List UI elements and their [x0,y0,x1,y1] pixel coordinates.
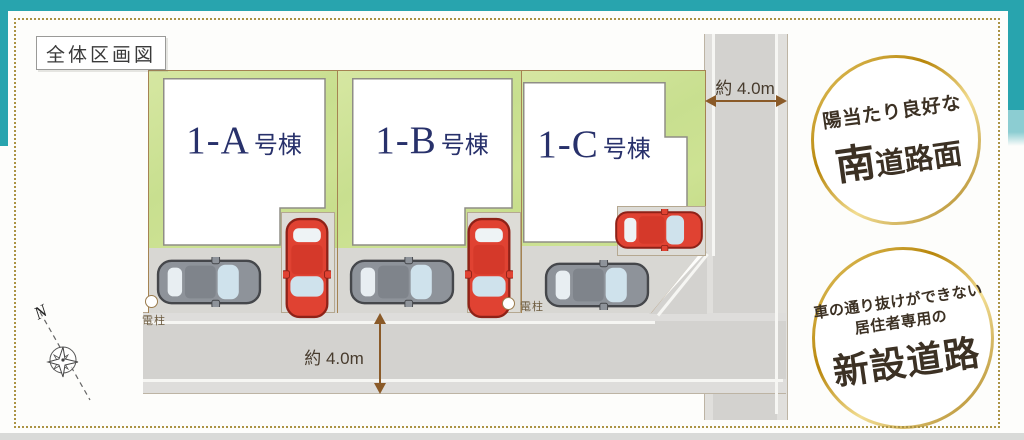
teal-border-top [0,0,1024,11]
page-title-box: 全体区画図 [36,36,166,70]
page-shadow-bottom [0,433,1024,440]
dotted-gold-frame [14,18,1000,428]
flyer-page: 1-A 号棟 1-B 号棟 1-C 号棟 [0,0,1024,440]
teal-border-left [0,0,8,146]
page-title: 全体区画図 [46,40,156,67]
teal-border-right [1008,0,1024,150]
